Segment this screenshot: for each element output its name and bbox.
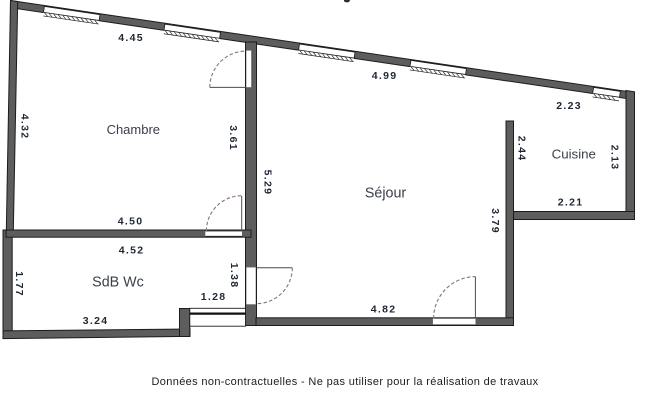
svg-text:4.50: 4.50 [118,216,144,228]
svg-text:Données non-contractuelles - N: Données non-contractuelles - Ne pas util… [152,376,539,388]
svg-text:4.99: 4.99 [372,70,398,82]
svg-text:Cuisine: Cuisine [552,147,596,162]
svg-text:1.77: 1.77 [13,271,25,297]
svg-text:4.82: 4.82 [371,304,397,316]
svg-text:3.61: 3.61 [227,125,239,151]
svg-text:Chambre: Chambre [107,122,160,137]
svg-text:5.29: 5.29 [261,170,273,196]
svg-text:Séjour: Séjour [365,185,407,201]
svg-text:3.24: 3.24 [83,315,109,327]
svg-text:2.44: 2.44 [516,136,528,162]
svg-text:2.21: 2.21 [558,196,584,208]
svg-text:2.13: 2.13 [608,145,620,171]
svg-text:4.45: 4.45 [118,32,144,44]
svg-text:4.32: 4.32 [18,114,30,140]
svg-text:3.79: 3.79 [489,208,501,234]
svg-text:SdB Wc: SdB Wc [92,274,144,290]
svg-text:4.52: 4.52 [119,244,145,256]
svg-text:1.28: 1.28 [201,291,227,303]
svg-text:1.38: 1.38 [228,263,240,289]
svg-text:2.23: 2.23 [556,100,582,112]
